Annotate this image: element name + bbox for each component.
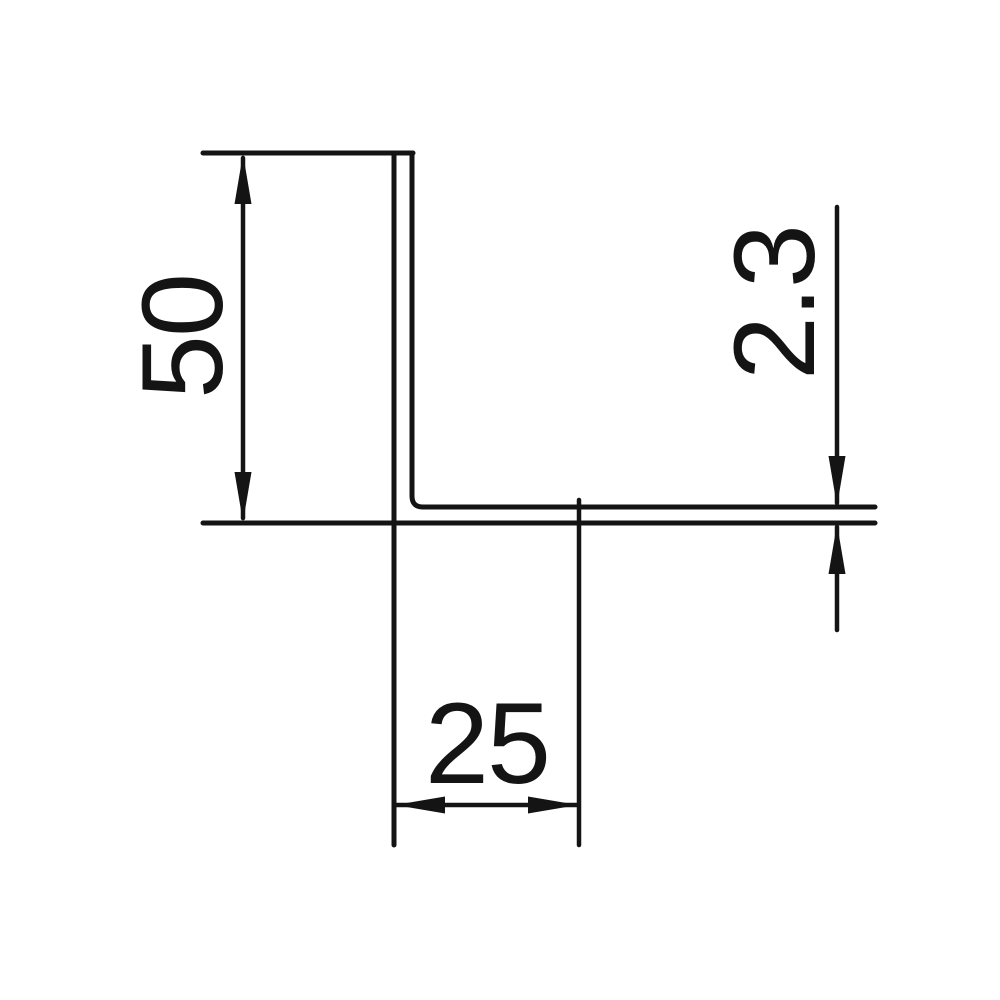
thickness-dimension-label: 2.3 [711, 226, 839, 380]
thickness-arrow-down-icon [829, 456, 846, 506]
drawing-canvas: 50 25 2.3 [0, 0, 1000, 1000]
height-arrow-up-icon [235, 154, 252, 204]
height-dimension-label: 50 [119, 275, 247, 399]
width-dimension-label: 25 [425, 680, 549, 808]
height-arrow-down-icon [235, 472, 252, 522]
thickness-arrow-up-icon [829, 524, 846, 574]
l-angle-profile-drawing: 50 25 2.3 [0, 0, 1000, 1000]
